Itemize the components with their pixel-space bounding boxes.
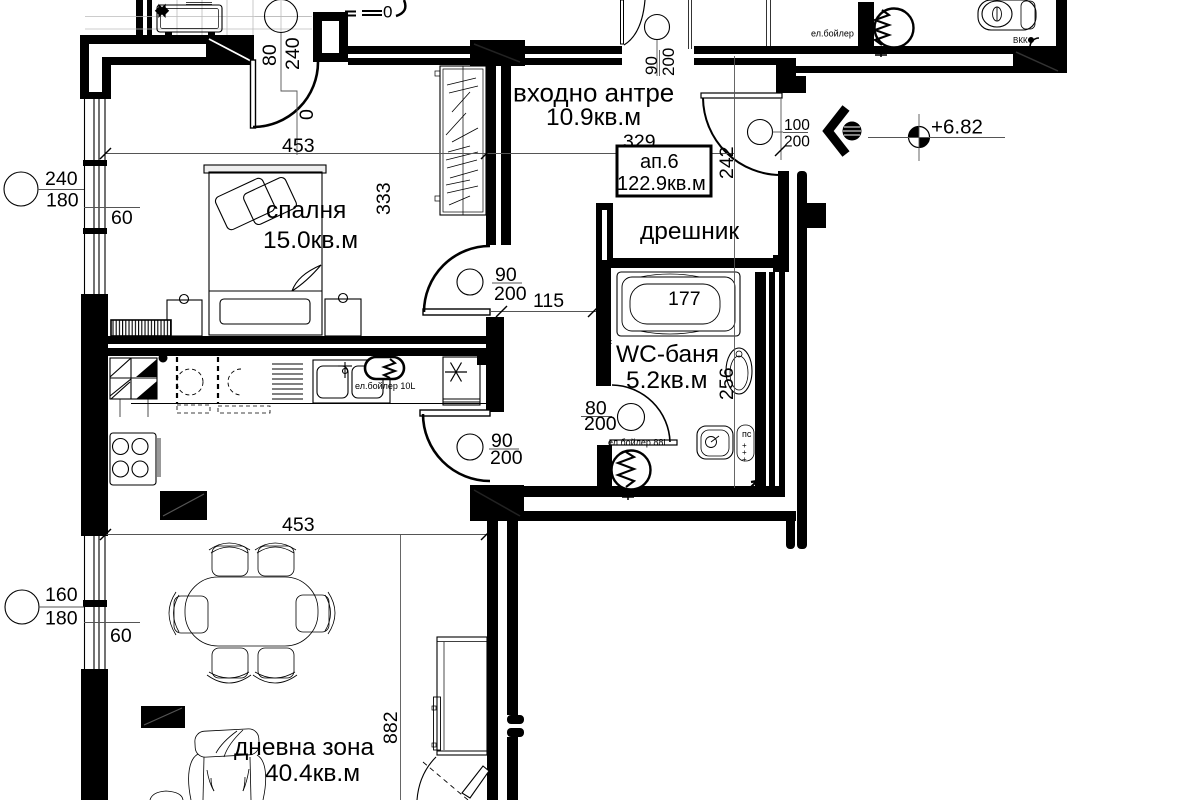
svg-text:5.2кв.м: 5.2кв.м — [626, 367, 707, 394]
svg-text:40.4кв.м: 40.4кв.м — [265, 760, 360, 787]
svg-text:ВКК: ВКК — [1013, 36, 1028, 45]
svg-text:333: 333 — [373, 182, 395, 215]
svg-text:200: 200 — [584, 413, 617, 435]
svg-text:+: + — [742, 455, 747, 464]
svg-text:160: 160 — [45, 584, 78, 606]
svg-text:0: 0 — [296, 109, 318, 120]
svg-text:882: 882 — [380, 711, 402, 744]
svg-text:10.9кв.м: 10.9кв.м — [546, 104, 641, 131]
svg-text:200: 200 — [659, 48, 678, 76]
svg-text:WC-баня: WC-баня — [616, 341, 719, 368]
svg-text:60: 60 — [110, 625, 132, 647]
svg-text:ел.бойлер: ел.бойлер — [811, 29, 854, 39]
svg-text:спалня: спалня — [266, 197, 346, 224]
svg-text:15.0кв.м: 15.0кв.м — [263, 227, 358, 254]
svg-text:180: 180 — [45, 608, 78, 630]
svg-text:100: 100 — [784, 117, 810, 134]
svg-text:0: 0 — [383, 3, 392, 22]
svg-text:256: 256 — [716, 367, 738, 400]
svg-text:200: 200 — [494, 283, 527, 305]
svg-text:115: 115 — [533, 290, 564, 312]
svg-text:177: 177 — [668, 288, 701, 310]
svg-text:240: 240 — [45, 168, 78, 190]
svg-text:60: 60 — [111, 207, 133, 229]
svg-text:входно антре: входно антре — [513, 78, 674, 108]
svg-text:пс: пс — [742, 429, 752, 439]
svg-text:242: 242 — [716, 146, 738, 179]
svg-text:ел.бойлер 88L: ел.бойлер 88L — [608, 438, 668, 448]
svg-text:ел.бойлер 10L: ел.бойлер 10L — [355, 381, 415, 391]
svg-text:453: 453 — [282, 135, 315, 157]
svg-text:80: 80 — [259, 44, 281, 66]
svg-text:дрешник: дрешник — [640, 218, 739, 245]
svg-text:+6.82: +6.82 — [931, 116, 983, 139]
svg-text:дневна зона: дневна зона — [234, 734, 375, 761]
svg-text:122.9кв.м: 122.9кв.м — [617, 173, 706, 195]
svg-text:180: 180 — [46, 190, 79, 212]
svg-text:240: 240 — [282, 37, 304, 70]
svg-text:200: 200 — [784, 134, 810, 151]
svg-text:ап.6: ап.6 — [640, 151, 679, 173]
svg-text:200: 200 — [490, 447, 523, 469]
svg-text:453: 453 — [282, 514, 315, 536]
svg-text:вк: вк — [605, 339, 613, 346]
